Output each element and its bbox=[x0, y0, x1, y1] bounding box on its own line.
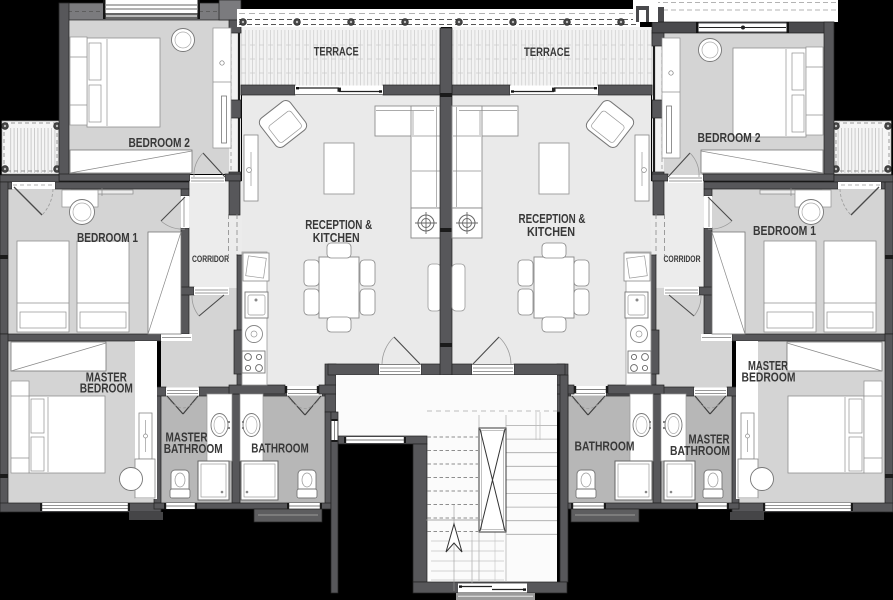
svg-text:BATHROOM: BATHROOM bbox=[164, 441, 223, 456]
svg-text:CORRIDOR: CORRIDOR bbox=[664, 254, 701, 265]
svg-text:BATHROOM: BATHROOM bbox=[575, 439, 635, 454]
svg-text:TERRACE: TERRACE bbox=[314, 45, 359, 59]
svg-text:CORRIDOR: CORRIDOR bbox=[192, 254, 229, 265]
svg-text:BEDROOM: BEDROOM bbox=[742, 370, 796, 385]
svg-text:BEDROOM 1: BEDROOM 1 bbox=[753, 223, 816, 238]
svg-text:BEDROOM: BEDROOM bbox=[80, 381, 133, 396]
svg-text:KITCHEN: KITCHEN bbox=[527, 224, 575, 239]
svg-text:BATHROOM: BATHROOM bbox=[670, 443, 730, 458]
svg-text:BEDROOM 2: BEDROOM 2 bbox=[128, 135, 190, 150]
svg-text:KITCHEN: KITCHEN bbox=[313, 230, 360, 245]
svg-text:BATHROOM: BATHROOM bbox=[251, 441, 309, 456]
svg-text:BEDROOM 1: BEDROOM 1 bbox=[77, 230, 138, 245]
svg-text:BEDROOM 2: BEDROOM 2 bbox=[698, 130, 761, 145]
svg-text:TERRACE: TERRACE bbox=[524, 45, 570, 59]
